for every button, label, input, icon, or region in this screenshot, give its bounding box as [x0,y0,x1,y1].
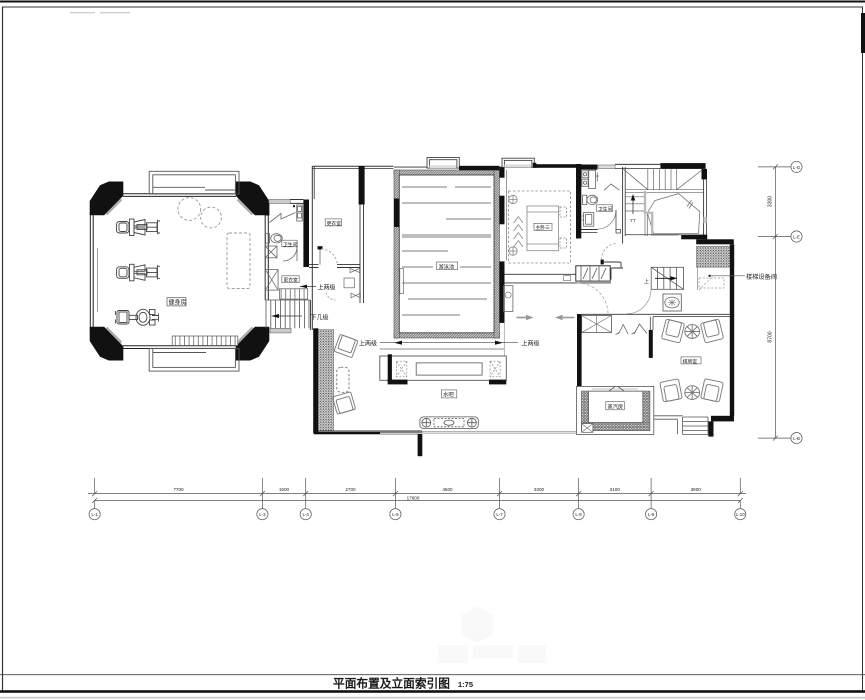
svg-text:8700: 8700 [768,331,774,342]
svg-text:棋牌室: 棋牌室 [683,358,698,365]
svg-text:上两级: 上两级 [359,339,377,347]
svg-text:楼梯设备间: 楼梯设备间 [746,273,777,281]
svg-text:3300: 3300 [768,196,774,207]
svg-text:3800: 3800 [691,487,702,492]
svg-text:更衣室: 更衣室 [283,277,298,284]
svg-text:下几级: 下几级 [311,314,329,322]
svg-text:L-8: L-8 [575,512,582,517]
svg-text:主卧三: 主卧三 [536,224,551,231]
svg-text:L-7: L-7 [496,512,503,517]
svg-text:3300: 3300 [534,487,545,492]
svg-text:L-6: L-6 [392,512,399,517]
svg-text:17600: 17600 [407,496,420,501]
svg-text:卫生间: 卫生间 [283,241,298,248]
svg-text:1:75: 1:75 [458,680,473,689]
svg-text:L-E: L-E [793,235,800,240]
svg-text:更衣室: 更衣室 [327,220,342,227]
svg-text:7700: 7700 [173,487,184,492]
svg-text:L-9: L-9 [648,512,655,517]
svg-text:L-10: L-10 [736,512,745,517]
svg-text:L-4: L-4 [303,512,310,517]
svg-text:L-1: L-1 [91,512,98,517]
svg-text:L-G: L-G [793,165,801,170]
svg-text:1500: 1500 [279,487,290,492]
svg-text:上两级: 上两级 [318,284,336,292]
svg-text:水吧: 水吧 [443,391,454,399]
svg-text:健身房: 健身房 [169,299,187,307]
svg-text:蒸汽房: 蒸汽房 [608,402,624,410]
svg-text:3100: 3100 [610,487,621,492]
svg-text:4500: 4500 [442,487,453,492]
svg-text:卫生间: 卫生间 [598,205,613,212]
svg-text:上: 上 [644,278,649,285]
svg-text:L-3: L-3 [259,512,266,517]
svg-text:2700: 2700 [345,487,356,492]
svg-text:平面布置及立面索引图: 平面布置及立面索引图 [333,677,450,691]
svg-text:上两级: 上两级 [522,339,540,347]
svg-text:L-B: L-B [793,436,800,441]
svg-text:游泳池: 游泳池 [439,262,455,270]
